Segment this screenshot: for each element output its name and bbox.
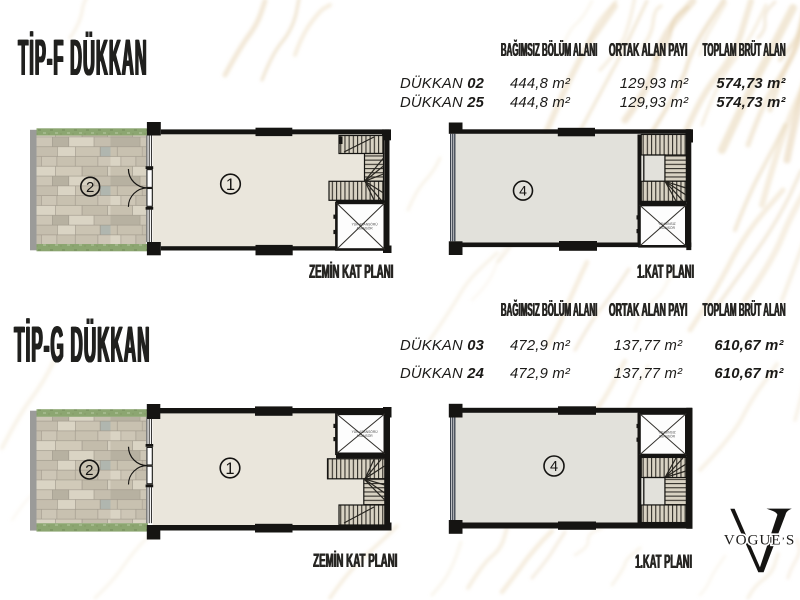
svg-text:1: 1 [226,176,235,194]
svg-text:2: 2 [86,179,94,196]
svg-text:ASANSÖR: ASANSÖR [659,435,676,439]
svg-text:ASANSÖR: ASANSÖR [357,227,374,231]
svg-text:ASANSÖR: ASANSÖR [357,434,374,438]
svg-text:1: 1 [225,460,234,478]
svg-text:4: 4 [550,459,558,475]
svg-text:4: 4 [519,183,527,199]
svg-text:ASANSÖR: ASANSÖR [659,226,676,230]
svg-text:2: 2 [85,462,93,479]
